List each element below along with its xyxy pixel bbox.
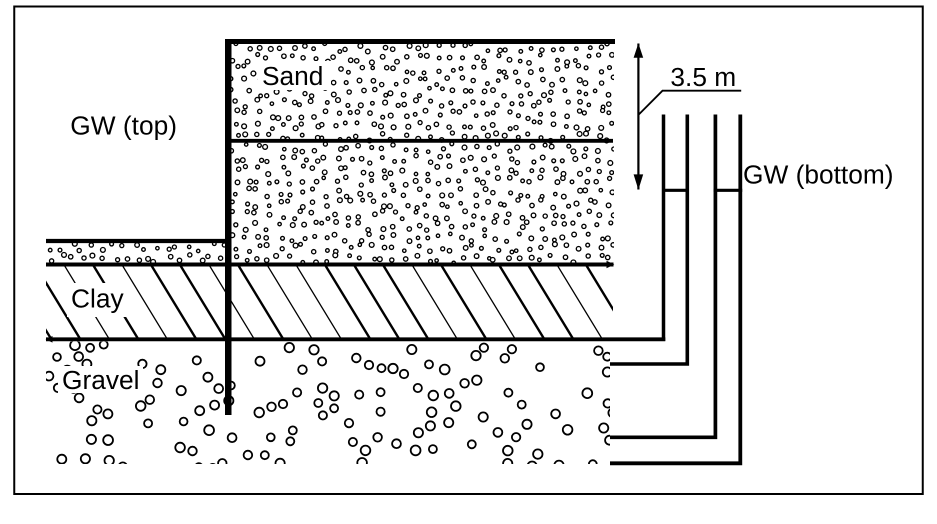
svg-text:Clay: Clay [71,284,124,314]
svg-text:GW (top): GW (top) [70,111,177,141]
svg-text:3.5 m: 3.5 m [670,62,736,92]
svg-text:Sand: Sand [262,61,323,91]
svg-text:GW (bottom): GW (bottom) [743,160,894,190]
svg-text:Gravel: Gravel [62,365,139,395]
